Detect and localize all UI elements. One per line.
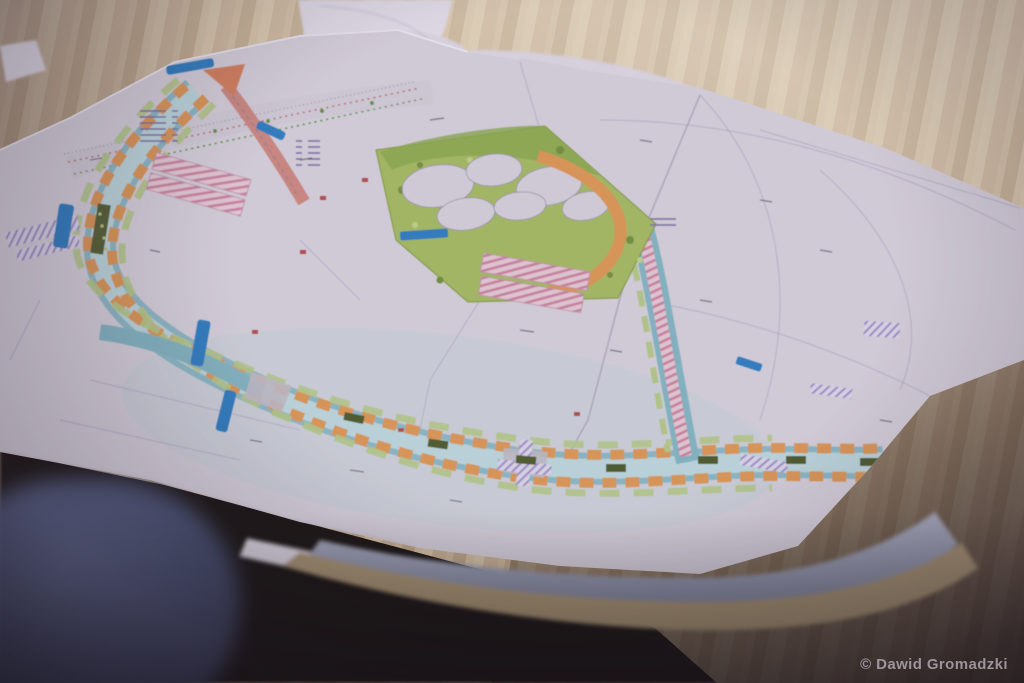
plan-book-svg <box>0 0 1024 683</box>
photo-watermark: © Dawid Gromadzki <box>860 656 1008 673</box>
loose-paper-corner <box>0 40 46 82</box>
photo-of-site-plans: © Dawid Gromadzki <box>0 0 1024 683</box>
